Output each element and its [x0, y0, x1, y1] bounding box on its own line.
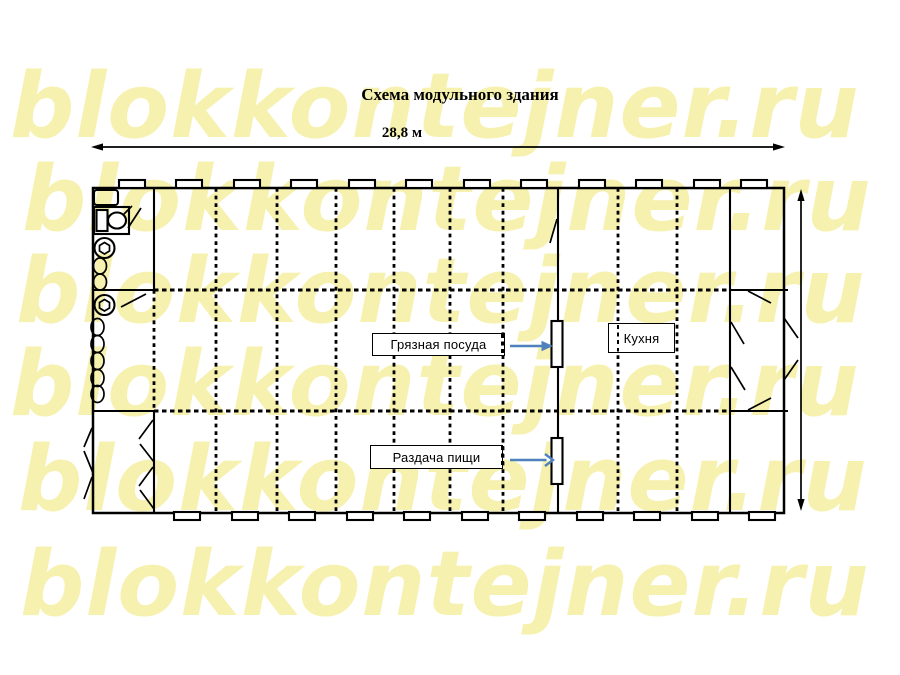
- callout-arrow-food-serving: [510, 454, 553, 466]
- label-food-serving: Раздача пищи: [370, 445, 503, 469]
- callout-arrow-dirty-dishes: [510, 341, 553, 351]
- diagram-title: Схема модульного здания: [60, 85, 860, 105]
- module-divider-overlay: [501, 446, 504, 468]
- page: blokkontejner.ru blokkontejner.ru blokko…: [0, 0, 900, 675]
- height-dimension-arrow: [797, 189, 804, 511]
- module-divider-overlay: [617, 325, 620, 352]
- width-dimension-arrow: [91, 143, 785, 150]
- door-swing-marks: [121, 208, 798, 410]
- sanitary-fixtures: [91, 190, 132, 403]
- label-dirty-dishes: Грязная посуда: [372, 333, 505, 356]
- width-dimension-label: 28,8 м: [352, 125, 452, 142]
- module-divider-overlay: [501, 334, 504, 355]
- stair-marks: [84, 420, 154, 509]
